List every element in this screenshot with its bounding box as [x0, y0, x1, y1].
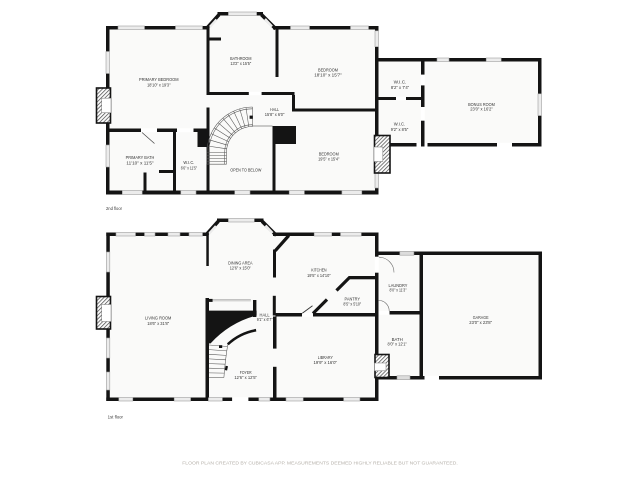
svg-text:18'10" x 15'7": 18'10" x 15'7" [314, 72, 342, 77]
svg-text:W.I.C.: W.I.C. [394, 80, 407, 85]
svg-text:W.I.C.: W.I.C. [183, 160, 194, 165]
svg-text:FLOOR PLAN CREATED BY CUBICASA: FLOOR PLAN CREATED BY CUBICASA APP. MEAS… [182, 460, 458, 465]
svg-text:2nd floor: 2nd floor [106, 206, 122, 211]
svg-text:19'5" x 15'4": 19'5" x 15'4" [318, 157, 340, 162]
svg-text:19'9" x 16'0": 19'9" x 16'0" [314, 360, 338, 365]
svg-text:KITCHEN: KITCHEN [311, 268, 326, 273]
svg-text:13'2" x 15'5": 13'2" x 15'5" [230, 61, 251, 66]
svg-text:23'0" x 23'8": 23'0" x 23'8" [469, 320, 492, 325]
svg-text:1st floor: 1st floor [108, 414, 124, 419]
svg-text:18'6" x 31'8": 18'6" x 31'8" [147, 321, 169, 326]
svg-text:23'0" x 16'2": 23'0" x 16'2" [470, 107, 493, 112]
svg-text:15'8" x 6'0": 15'8" x 6'0" [265, 112, 285, 117]
svg-text:W.I.C.: W.I.C. [394, 122, 406, 127]
svg-text:18'10" x 19'3": 18'10" x 19'3" [147, 82, 171, 87]
svg-text:PRIMARY BATH: PRIMARY BATH [126, 155, 155, 160]
svg-text:8'0" x 11'3": 8'0" x 11'3" [390, 288, 407, 293]
svg-text:6'6" x 11'5": 6'6" x 11'5" [181, 165, 198, 170]
svg-text:12'6" x 15'0": 12'6" x 15'0" [230, 265, 252, 270]
svg-text:PRIMARY BEDROOM: PRIMARY BEDROOM [139, 77, 179, 82]
svg-text:9'2" x 8'5": 9'2" x 8'5" [391, 127, 409, 132]
svg-text:11'10" x 11'5": 11'10" x 11'5" [126, 161, 154, 166]
svg-text:8'2" x 7'4": 8'2" x 7'4" [391, 85, 410, 90]
svg-text:OPEN TO BELOW: OPEN TO BELOW [230, 168, 262, 173]
svg-text:9'1" x 6'7": 9'1" x 6'7" [257, 317, 273, 322]
svg-text:12'6" x 12'5": 12'6" x 12'5" [234, 375, 257, 380]
svg-text:LIVING ROOM: LIVING ROOM [145, 315, 172, 320]
svg-text:8'5" x 5'10": 8'5" x 5'10" [343, 302, 361, 307]
svg-text:8'0" x 12'1": 8'0" x 12'1" [388, 341, 408, 346]
svg-text:19'5" x 14'10": 19'5" x 14'10" [307, 273, 331, 278]
